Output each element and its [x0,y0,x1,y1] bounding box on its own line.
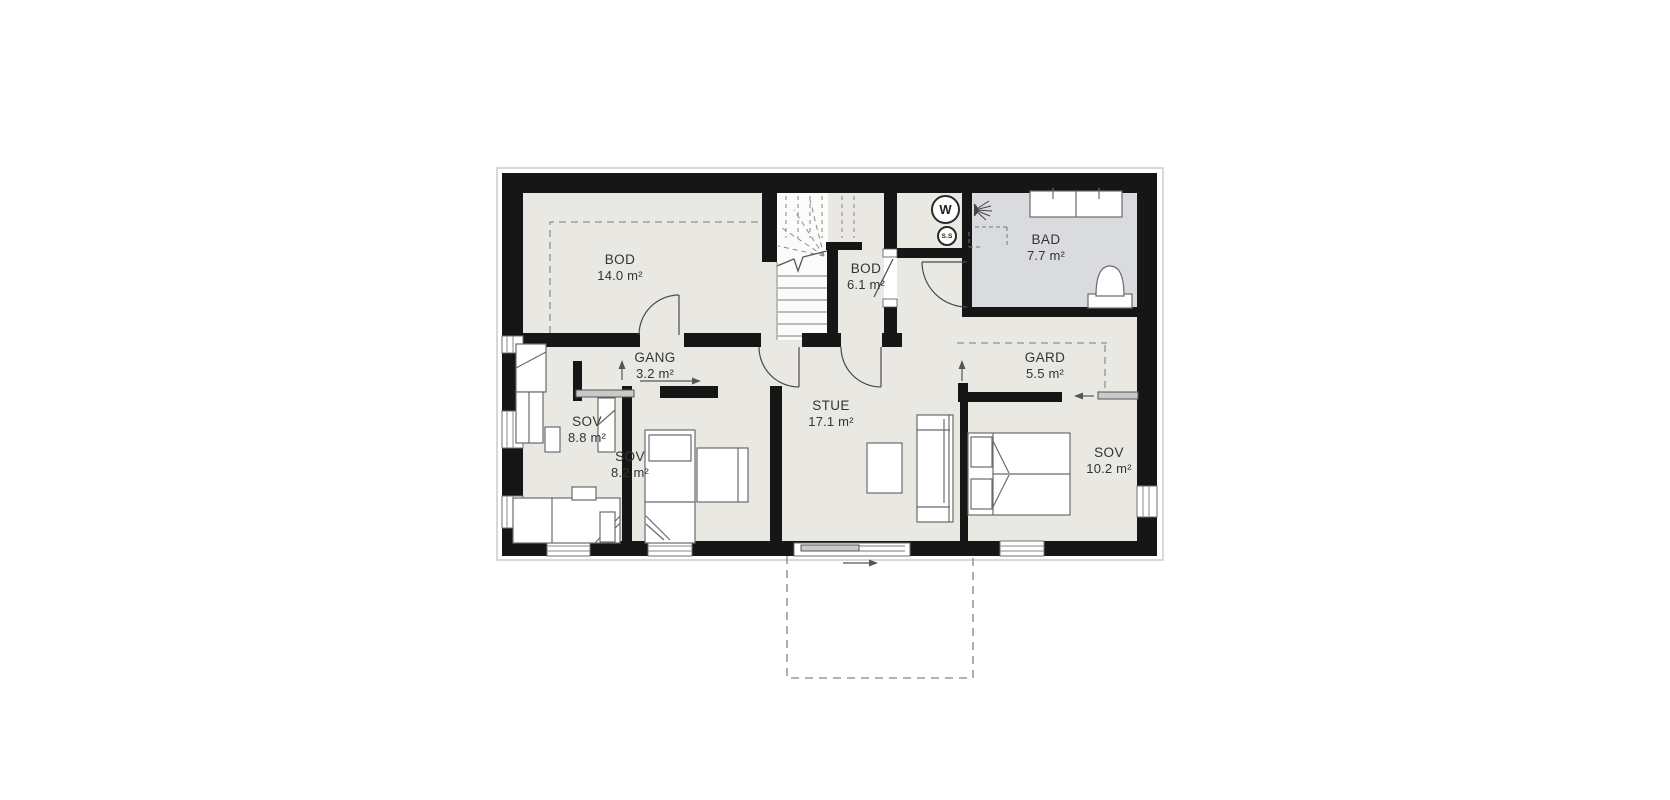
desk [697,448,748,502]
nightstand [572,487,596,500]
washer-badge: W [931,195,960,224]
room-area: 5.5 m² [1025,366,1066,382]
room-area: 17.1 m² [808,414,853,430]
room-area: 3.2 m² [634,366,675,382]
dryer-badge: S.S [937,226,957,246]
washer-label: W [939,202,951,217]
room-name: BAD [1027,232,1065,248]
dryer-label: S.S [941,233,952,240]
room-name: BOD [847,261,885,277]
room-name: GARD [1025,350,1066,366]
room-label-bod-61: BOD 6.1 m² [847,261,885,293]
room-name: GANG [634,350,675,366]
room-label-sov-102: SOV 10.2 m² [1086,445,1131,477]
room-label-sov-82: SOV 8.2 m² [611,449,649,481]
room-label-bad: BAD 7.7 m² [1027,232,1065,264]
room-name: SOV [1086,445,1131,461]
room-name: BOD [597,252,642,268]
room-name: SOV [611,449,649,465]
bed-single [645,430,695,543]
coffee-table [867,443,902,493]
room-label-bod-14: BOD 14.0 m² [597,252,642,284]
sofa [917,415,953,522]
room-label-stue: STUE 17.1 m² [808,398,853,430]
room-area: 6.1 m² [847,277,885,293]
patio-sliding-door [794,543,910,567]
room-label-gard: GARD 5.5 m² [1025,350,1066,382]
room-label-gang: GANG 3.2 m² [634,350,675,382]
bed-double [968,433,1070,515]
room-label-sov-88: SOV 8.8 m² [568,414,606,446]
room-area: 7.7 m² [1027,248,1065,264]
room-area: 8.8 m² [568,430,606,446]
room-area: 8.2 m² [611,465,649,481]
room-name: SOV [568,414,606,430]
room-area: 10.2 m² [1086,461,1131,477]
floor-plan-canvas: BOD 14.0 m² BOD 6.1 m² BAD 7.7 m² GANG 3… [0,0,1670,800]
room-area: 14.0 m² [597,268,642,284]
vanity-double-sink [1030,188,1122,217]
terrace-outline [787,556,973,678]
room-name: STUE [808,398,853,414]
